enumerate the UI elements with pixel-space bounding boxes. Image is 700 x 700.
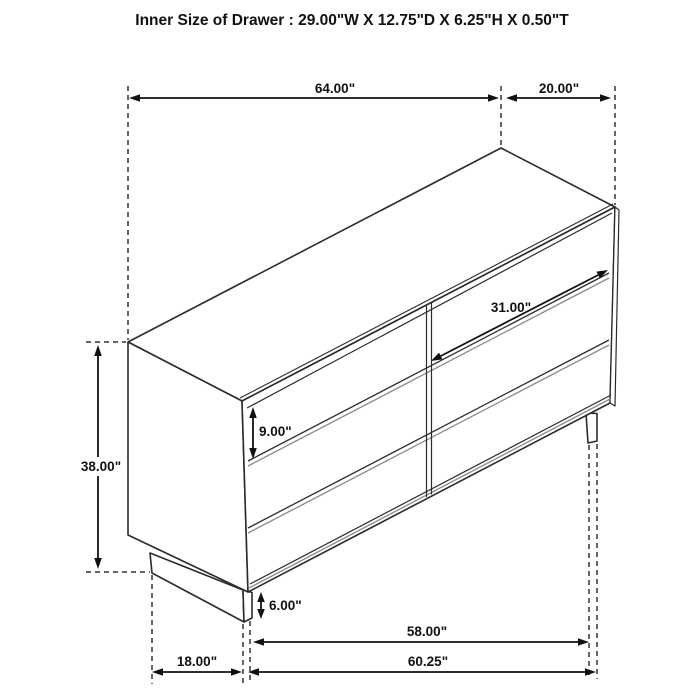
dim-label-drawer-height: 9.00": [259, 424, 292, 439]
arrowhead-up-icon: [257, 592, 265, 602]
diagram-svg: Inner Size of Drawer : 29.00"W X 12.75"D…: [0, 0, 700, 700]
dim-label-top-depth: 20.00": [539, 81, 579, 96]
arrowhead-right-icon: [231, 668, 242, 676]
dim-leg-span-outer: 60.25": [248, 654, 596, 676]
arrowhead-right-icon: [488, 94, 499, 102]
dim-overall-height: 38.00": [75, 345, 127, 569]
dim-leg-span-inner: 58.00": [253, 624, 589, 646]
arrowhead-left-icon: [152, 668, 163, 676]
arrowhead-down-icon: [257, 609, 265, 619]
arrowhead-right-icon: [585, 668, 596, 676]
front-left-leg: [243, 590, 252, 622]
arrowhead-up-icon: [94, 345, 102, 356]
dim-top-depth: 20.00": [506, 81, 611, 102]
dim-label-leg-span-outer: 60.25": [408, 654, 448, 669]
dim-label-drawer-width: 31.00": [491, 300, 531, 315]
dim-overall-width: 64.00": [129, 81, 499, 102]
dresser-body: [128, 148, 619, 622]
dim-label-overall-width: 64.00": [315, 81, 355, 96]
dresser-dimension-diagram: Inner Size of Drawer : 29.00"W X 12.75"D…: [0, 0, 700, 700]
dim-base-height: 6.00": [257, 592, 301, 619]
arrowhead-right-icon: [600, 94, 611, 102]
arrowhead-left-icon: [506, 94, 517, 102]
dim-label-leg-span-inner: 58.00": [407, 624, 447, 639]
right-leg: [586, 413, 597, 443]
dim-label-overall-height: 38.00": [81, 459, 121, 474]
arrowhead-down-icon: [94, 558, 102, 569]
dim-side-depth: 18.00": [152, 654, 242, 676]
arrowhead-left-icon: [253, 638, 264, 646]
dim-label-base-height: 6.00": [269, 598, 302, 613]
diagram-title: Inner Size of Drawer : 29.00"W X 12.75"D…: [135, 12, 569, 29]
arrowhead-left-icon: [129, 94, 140, 102]
arrowhead-right-icon: [578, 638, 589, 646]
dim-label-side-depth: 18.00": [177, 654, 217, 669]
